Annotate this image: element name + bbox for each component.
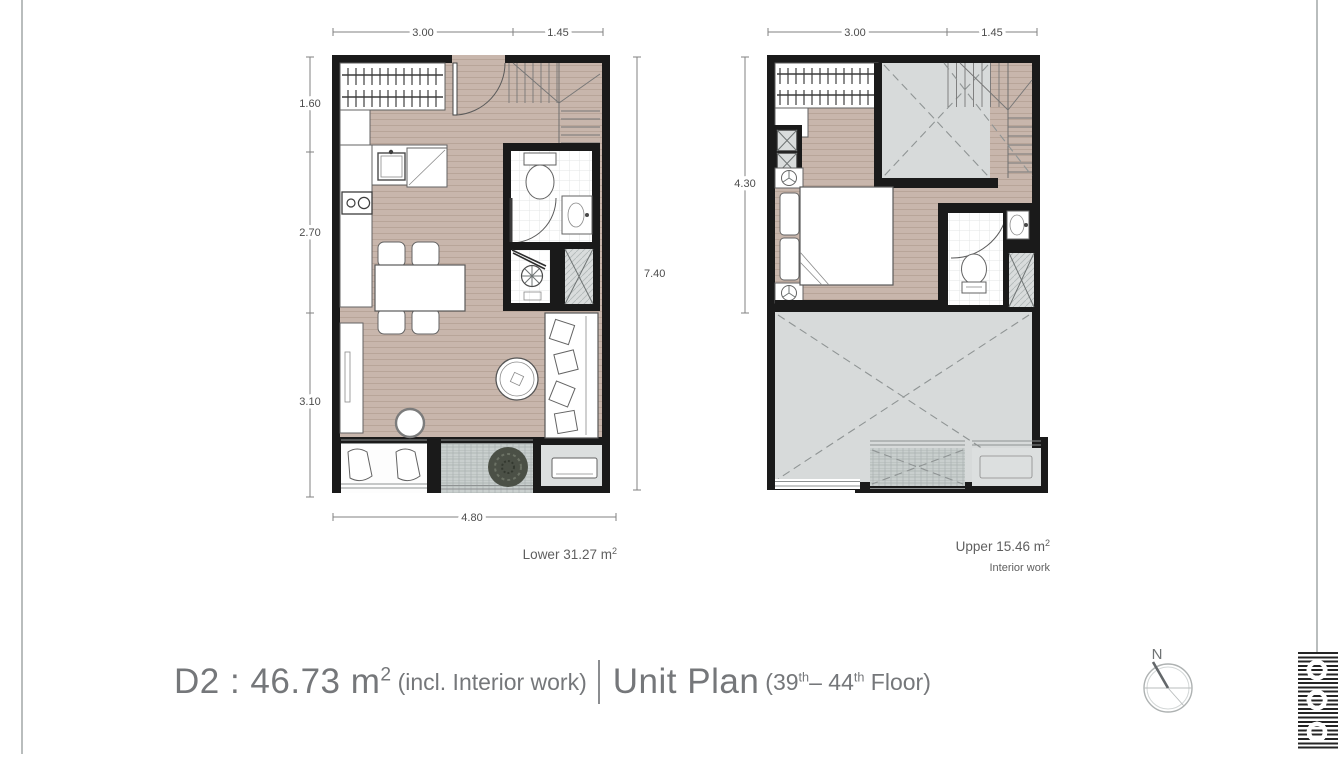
upper-floor-plan bbox=[767, 55, 1048, 493]
dim-lower-top-left: 3.00 bbox=[412, 27, 433, 39]
lower-area-label: Lower 31.27 m2 bbox=[523, 546, 617, 562]
dim-lower-left-top: 1.60 bbox=[299, 98, 320, 110]
dim-upper-top-left: 3.00 bbox=[844, 27, 865, 39]
north-compass-icon: N bbox=[1144, 646, 1192, 712]
toilet-icon bbox=[524, 153, 556, 199]
tv-console-icon bbox=[340, 323, 363, 433]
upper-balcony bbox=[870, 441, 965, 489]
bathroom-sink-icon bbox=[562, 196, 592, 234]
toilet-icon bbox=[962, 254, 987, 293]
dim-upper-top-right: 1.45 bbox=[981, 27, 1002, 39]
lower-balcony bbox=[441, 440, 533, 493]
title-divider bbox=[598, 660, 600, 704]
north-label: N bbox=[1152, 646, 1163, 663]
shaft-icon bbox=[1003, 247, 1040, 313]
bed-icon bbox=[775, 168, 893, 303]
sup-squared: 2 bbox=[380, 664, 391, 685]
upper-area-label: Upper 15.46 m2 bbox=[956, 538, 1050, 554]
page-frame-line-left bbox=[21, 0, 23, 754]
shower-room bbox=[503, 242, 558, 311]
shaft-icon bbox=[558, 242, 600, 311]
bathroom-sink-icon bbox=[1003, 205, 1040, 247]
lower-bathroom bbox=[503, 143, 600, 250]
dim-lower-left-bottom: 3.10 bbox=[299, 396, 320, 408]
lower-floor-plan bbox=[332, 55, 610, 493]
plan-name: Unit Plan bbox=[613, 662, 760, 702]
kitchen-sink-icon bbox=[378, 150, 405, 180]
dim-lower-left-mid: 2.70 bbox=[299, 227, 320, 239]
unit-area-title: D2 : 46.73 m2 bbox=[174, 662, 392, 702]
plant-icon bbox=[488, 447, 528, 487]
dim-lower-right: 7.40 bbox=[644, 268, 665, 280]
dim-lower-bottom: 4.80 bbox=[461, 512, 482, 524]
wall-stub bbox=[533, 437, 541, 493]
sofa-icon bbox=[545, 313, 598, 438]
sheet-title: D2 : 46.73 m2 (incl. Interior work) Unit… bbox=[174, 660, 931, 704]
dim-upper-left: 4.30 bbox=[734, 178, 755, 190]
lower-terrace-room bbox=[341, 440, 427, 493]
unit-plan-sheet: 3.00 1.45 1.60 2.70 3.10 7.40 4.80 Lower… bbox=[0, 0, 1342, 754]
floor-range: (39th– 44th Floor) bbox=[765, 669, 931, 696]
coffee-table-icon bbox=[496, 358, 538, 400]
striped-brand-logo bbox=[1298, 652, 1338, 750]
dim-lower-top-right: 1.45 bbox=[547, 27, 568, 39]
floorplan-drawing: 3.00 1.45 1.60 2.70 3.10 7.40 4.80 Lower… bbox=[0, 0, 1342, 754]
stool-icon bbox=[396, 409, 424, 437]
lower-ac-ledge bbox=[541, 445, 602, 486]
unit-area-note: (incl. Interior work) bbox=[398, 669, 587, 696]
bedroom-wall bbox=[775, 300, 941, 312]
wall-stub bbox=[427, 437, 441, 493]
upper-area-note: Interior work bbox=[989, 562, 1050, 574]
page-frame-line-right bbox=[1316, 0, 1318, 652]
stove-icon bbox=[342, 192, 372, 214]
